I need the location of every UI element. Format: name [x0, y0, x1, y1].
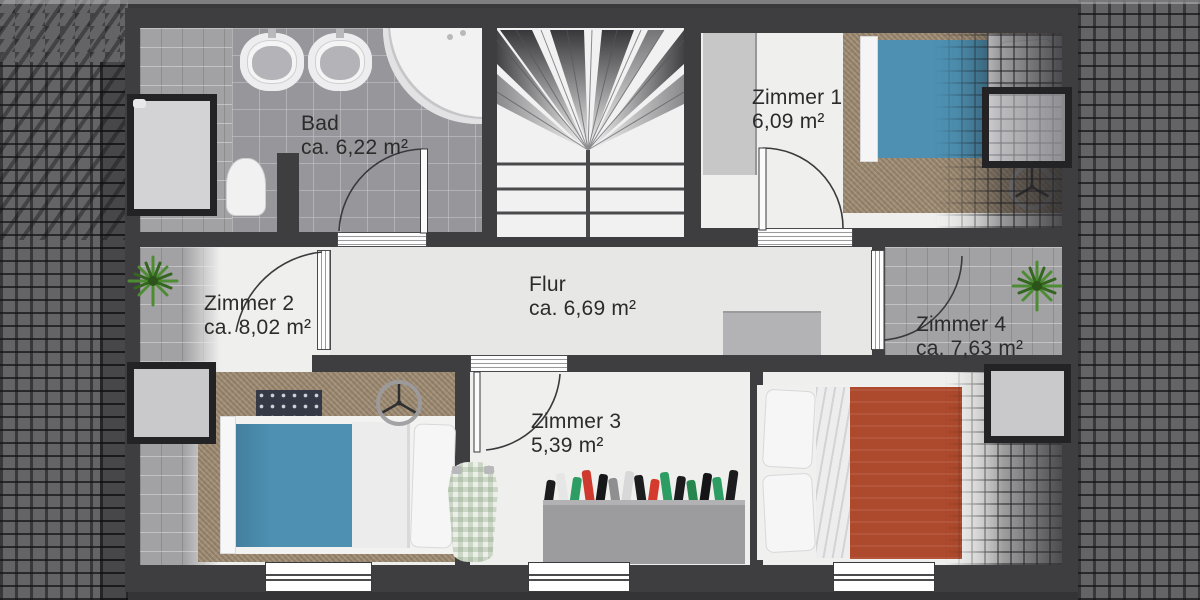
- label-zimmer1: Zimmer 1 6,09 m²: [752, 86, 842, 134]
- roof-window-zimmer1: [982, 87, 1072, 168]
- image-top-edge: [0, 0, 1200, 4]
- clothes-rack: [543, 500, 745, 564]
- label-zimmer1-area: 6,09 m²: [752, 110, 842, 134]
- toilet: [226, 158, 266, 216]
- label-bad: Bad ca. 6,22 m²: [301, 112, 408, 160]
- label-flur-name: Flur: [529, 273, 636, 297]
- shower-handle: [133, 99, 146, 108]
- ironing-board-foot-left: [452, 466, 462, 474]
- roof-ridge-left-upper: [0, 0, 128, 240]
- door-leaf-zimmer4: [871, 250, 885, 350]
- label-zimmer4-area: ca. 7,63 m²: [916, 337, 1023, 361]
- ironing-board: [448, 462, 498, 562]
- staircase-floor: [497, 28, 684, 237]
- roof-tiles-right: [1078, 0, 1200, 600]
- label-zimmer3: Zimmer 3 5,39 m²: [531, 410, 621, 458]
- label-zimmer4: Zimmer 4 ca. 7,63 m²: [916, 313, 1023, 361]
- bathroom-sink-left-basin: [252, 46, 292, 80]
- roof-window-zimmer4: [984, 364, 1071, 443]
- label-zimmer3-name: Zimmer 3: [531, 410, 621, 434]
- door-frame-zimmer1: [757, 228, 853, 247]
- bed-zimmer2-blanket-white: [352, 422, 410, 548]
- shower-cabin: [127, 94, 217, 216]
- label-bad-name: Bad: [301, 112, 408, 136]
- label-zimmer2-area: ca. 8,02 m²: [204, 316, 311, 340]
- window-zimmer2: [265, 562, 372, 592]
- bathroom-sink-right-basin: [320, 46, 360, 80]
- label-bad-area: ca. 6,22 m²: [301, 136, 408, 160]
- bed-zimmer2-blanket-blue: [236, 424, 352, 547]
- roof-window-zimmer2: [127, 362, 216, 444]
- ironing-board-foot-right: [484, 466, 494, 474]
- label-flur: Flur ca. 6,69 m²: [529, 273, 636, 321]
- bed-zimmer4-sheet: [816, 387, 850, 558]
- label-zimmer3-area: 5,39 m²: [531, 434, 621, 458]
- floor-plan-canvas: Bad ca. 6,22 m² Zimmer 1 6,09 m² Zimmer …: [0, 0, 1200, 600]
- wardrobe-zimmer1: [703, 33, 757, 175]
- label-flur-area: ca. 6,69 m²: [529, 297, 636, 321]
- bed-zimmer2-headboard: [220, 416, 236, 554]
- bed-zimmer4-pillow-bottom: [762, 473, 816, 554]
- window-zimmer3: [528, 562, 630, 592]
- bed-zimmer1-headboard: [860, 36, 878, 162]
- label-zimmer2-name: Zimmer 2: [204, 292, 311, 316]
- door-frame-zimmer3: [470, 355, 568, 372]
- wall-stub-bad: [277, 153, 299, 232]
- door-frame-bad: [337, 232, 427, 247]
- label-zimmer2: Zimmer 2 ca. 8,02 m²: [204, 292, 311, 340]
- label-zimmer4-name: Zimmer 4: [916, 313, 1023, 337]
- doormat-flur: [723, 311, 821, 355]
- roof-margin-bottom: [128, 592, 1078, 600]
- label-zimmer1-name: Zimmer 1: [752, 86, 842, 110]
- wall-flur-zimmer2: [312, 355, 470, 372]
- bed-zimmer4-pillow-top: [762, 389, 816, 470]
- window-zimmer4: [833, 562, 935, 592]
- door-leaf-zimmer2: [317, 250, 331, 350]
